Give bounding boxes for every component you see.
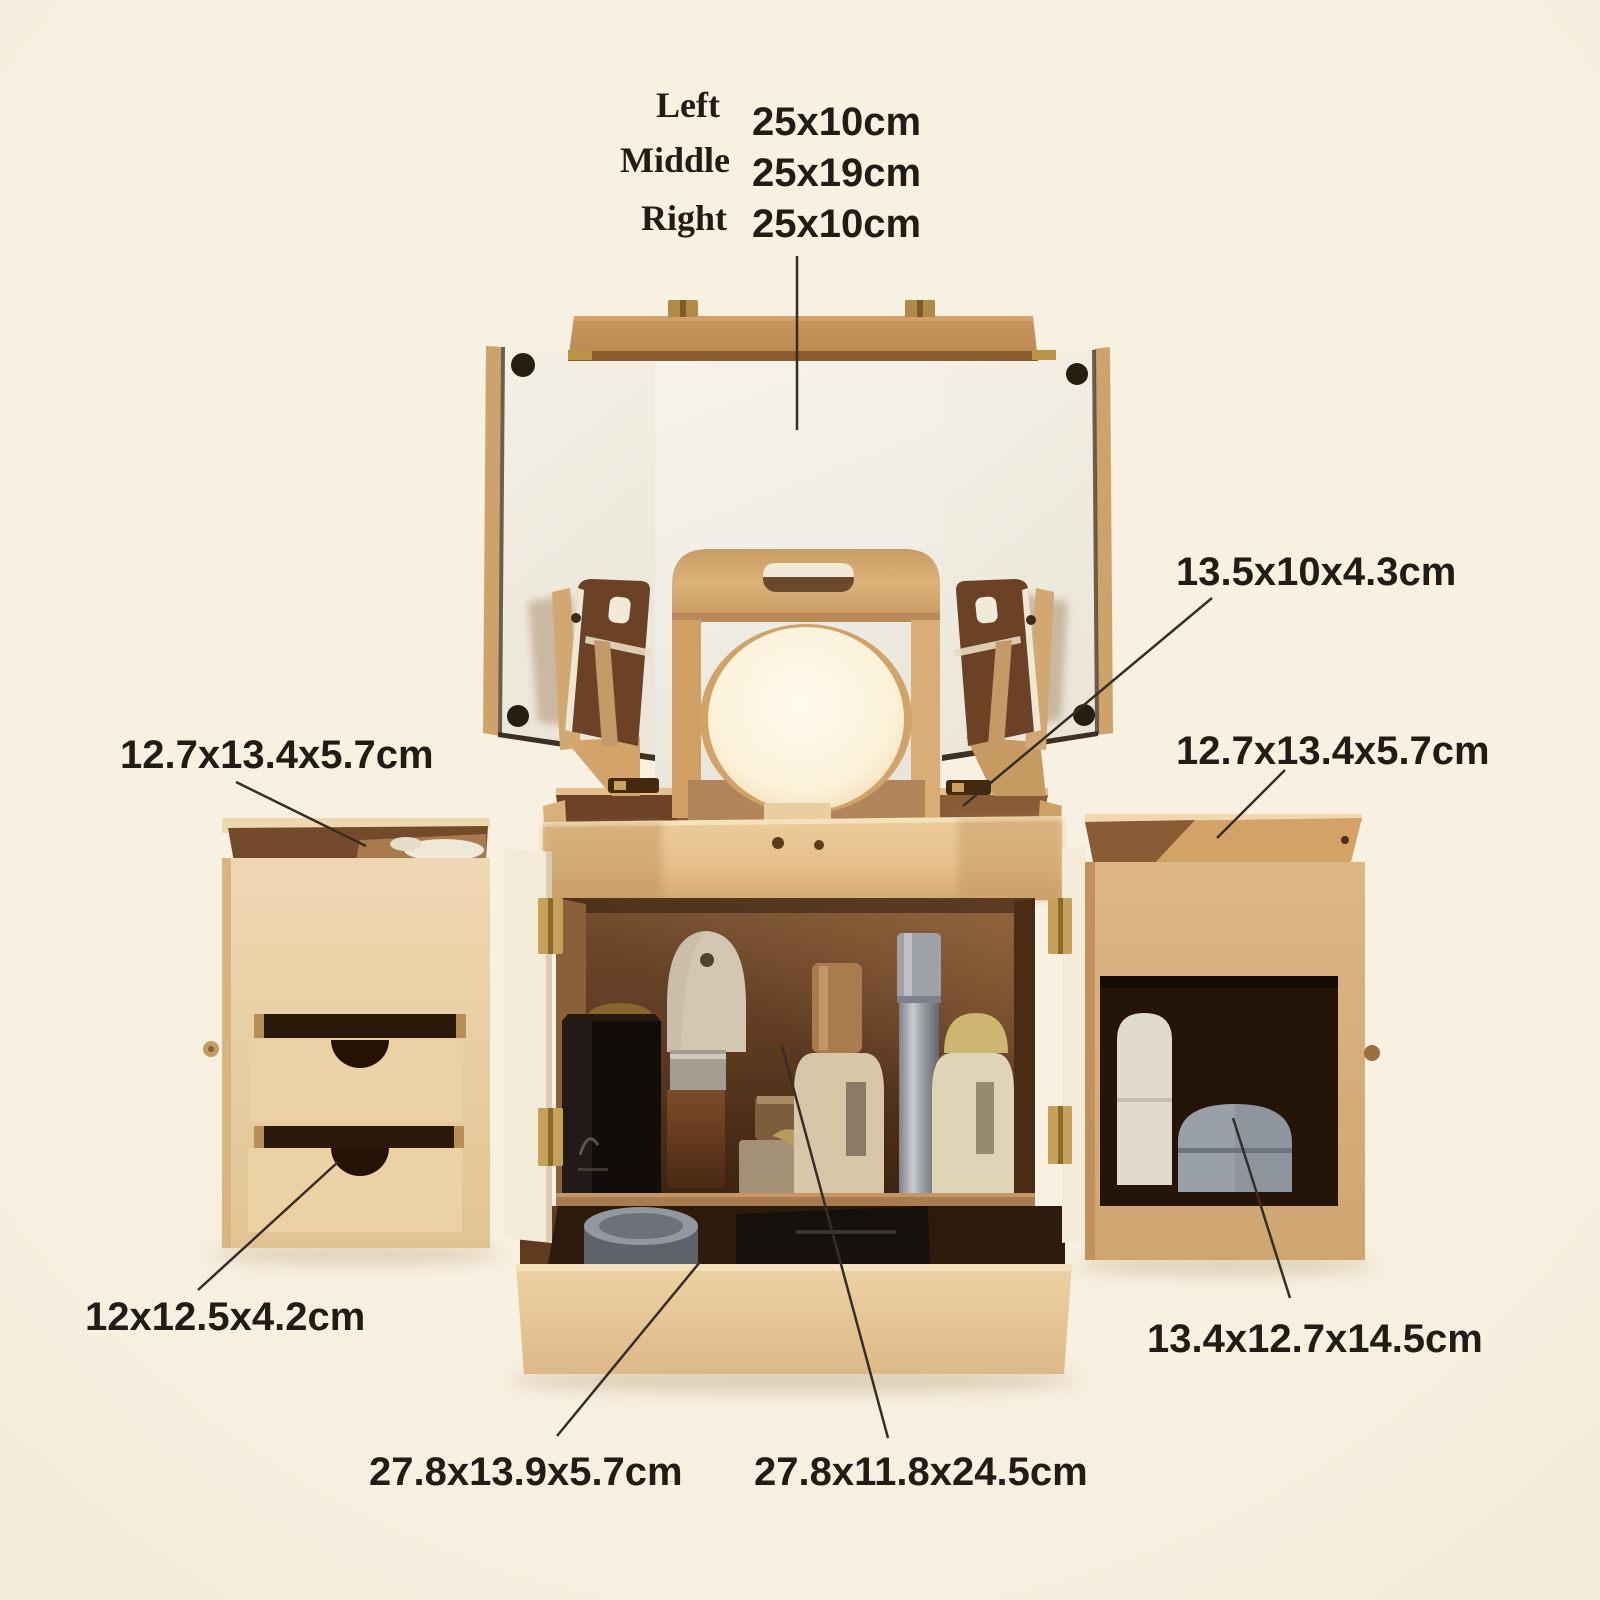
svg-text:27.8x13.9x5.7cm: 27.8x13.9x5.7cm — [369, 1450, 683, 1494]
svg-text:25x10cm: 25x10cm — [752, 202, 921, 246]
svg-text:27.8x11.8x24.5cm: 27.8x11.8x24.5cm — [754, 1450, 1088, 1494]
svg-text:13.5x10x4.3cm: 13.5x10x4.3cm — [1176, 550, 1456, 594]
svg-text:Middle: Middle — [620, 140, 730, 180]
svg-text:Right: Right — [641, 198, 727, 238]
svg-text:12x12.5x4.2cm: 12x12.5x4.2cm — [85, 1295, 365, 1339]
svg-text:Left: Left — [656, 85, 720, 125]
svg-text:25x10cm: 25x10cm — [752, 100, 921, 144]
svg-text:12.7x13.4x5.7cm: 12.7x13.4x5.7cm — [1176, 729, 1490, 773]
svg-text:13.4x12.7x14.5cm: 13.4x12.7x14.5cm — [1147, 1317, 1483, 1361]
svg-text:25x19cm: 25x19cm — [752, 151, 921, 195]
svg-text:12.7x13.4x5.7cm: 12.7x13.4x5.7cm — [120, 733, 434, 777]
